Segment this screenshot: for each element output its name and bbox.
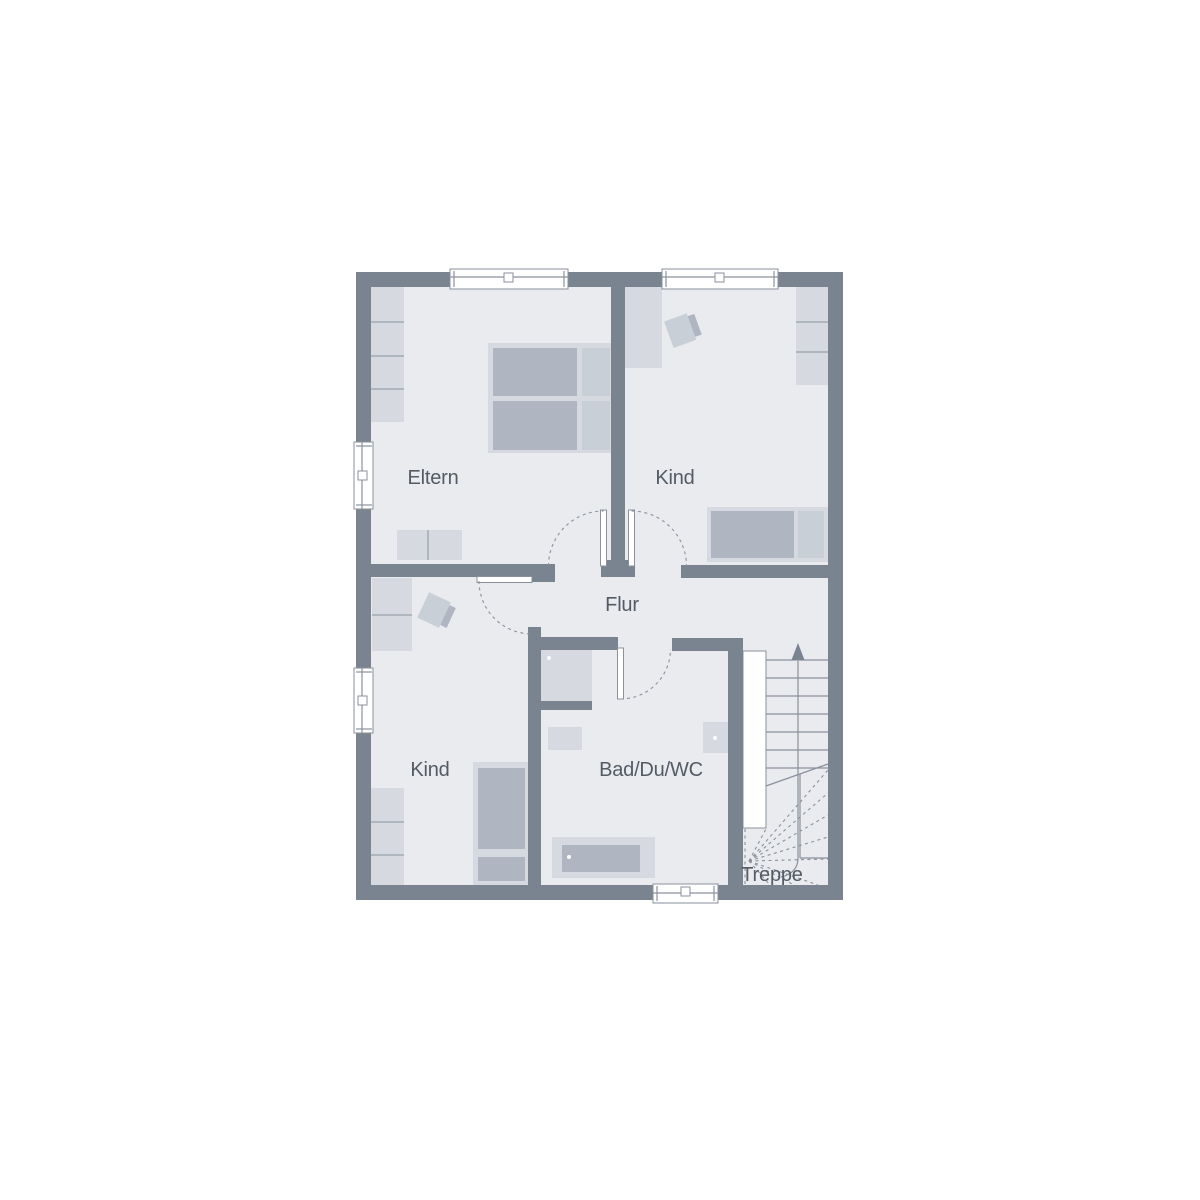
wall-cap-left bbox=[530, 564, 555, 582]
mattress bbox=[493, 401, 577, 450]
wall-bad-top-left bbox=[528, 637, 618, 650]
room-label-flur: Flur bbox=[605, 594, 639, 616]
wall-kind-flur bbox=[681, 565, 828, 578]
wall-bad-stairs bbox=[728, 638, 743, 885]
room-label-eltern: Eltern bbox=[407, 467, 458, 489]
exterior-wall-bottom bbox=[356, 885, 843, 900]
door-leaf-kind-top bbox=[629, 510, 635, 566]
shower-drain-dot bbox=[547, 656, 551, 660]
door-leaf-bad bbox=[618, 648, 624, 699]
pillow bbox=[582, 348, 610, 396]
window-left-kind bbox=[354, 668, 373, 733]
pillow bbox=[798, 511, 824, 558]
wall-eltern-kind bbox=[611, 287, 625, 560]
exterior-wall-left bbox=[356, 272, 371, 900]
room-label-bad: Bad/Du/WC bbox=[599, 759, 703, 781]
window-top-eltern bbox=[450, 269, 568, 289]
mattress bbox=[493, 348, 577, 396]
window-bottom-bad bbox=[653, 884, 718, 903]
wall-eltern-flur bbox=[371, 564, 555, 577]
wc-dot bbox=[713, 736, 717, 740]
floor-plan-page: Eltern Kind Flur Kind Bad/Du/WC Treppe bbox=[0, 0, 1200, 1200]
door-leaf-eltern bbox=[601, 510, 607, 566]
stairwell-void bbox=[743, 651, 766, 828]
exterior-wall-right bbox=[828, 272, 843, 900]
shower-half-wall bbox=[541, 701, 592, 710]
room-label-kind-bottom: Kind bbox=[410, 759, 449, 781]
floor-plan: Eltern Kind Flur Kind Bad/Du/WC Treppe bbox=[0, 0, 1200, 1200]
pillow bbox=[582, 401, 610, 450]
wall-kind-bad bbox=[528, 627, 541, 885]
room-label-kind-top: Kind bbox=[655, 467, 694, 489]
wardrobe bbox=[371, 287, 404, 422]
cabinet bbox=[622, 287, 662, 368]
wardrobe bbox=[371, 788, 404, 885]
door-leaf-kind-bottom bbox=[477, 577, 532, 583]
window-left-eltern bbox=[354, 442, 373, 509]
bathtub-drain-dot bbox=[567, 855, 571, 859]
bathtub bbox=[562, 845, 640, 872]
room-label-treppe: Treppe bbox=[741, 864, 803, 886]
bed-footer bbox=[478, 857, 525, 881]
wardrobe bbox=[796, 287, 828, 385]
mattress bbox=[711, 511, 794, 558]
mattress bbox=[478, 768, 525, 849]
window-top-kind bbox=[662, 269, 778, 289]
washbasin bbox=[548, 727, 582, 750]
dresser bbox=[397, 530, 462, 560]
